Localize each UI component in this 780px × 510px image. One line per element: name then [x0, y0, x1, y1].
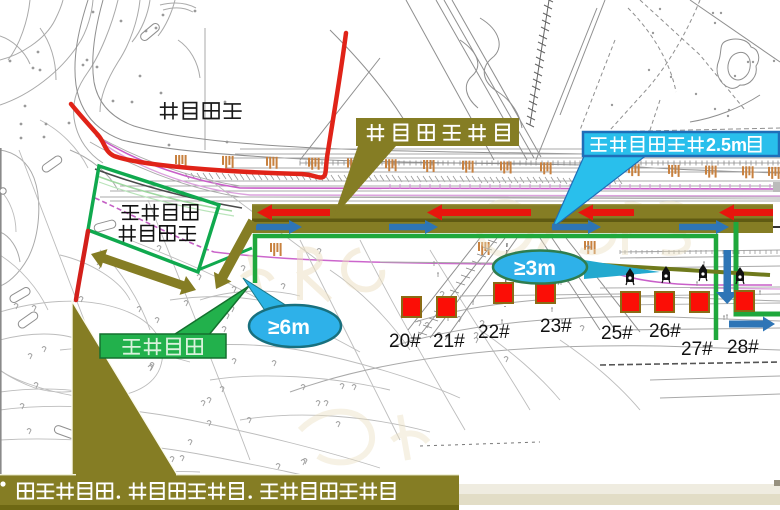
svg-text:22#: 22#	[478, 322, 510, 343]
svg-text:20#: 20#	[389, 331, 421, 352]
svg-text:28#: 28#	[727, 337, 759, 358]
svg-text:≥6m: ≥6m	[268, 316, 310, 339]
svg-text:2.5m: 2.5m	[706, 135, 747, 155]
svg-text:26#: 26#	[649, 321, 681, 342]
svg-text:21#: 21#	[433, 331, 465, 352]
svg-text:25#: 25#	[601, 323, 633, 344]
svg-text:≥3m: ≥3m	[514, 257, 556, 280]
svg-text:23#: 23#	[540, 316, 572, 337]
svg-text:27#: 27#	[681, 339, 713, 360]
